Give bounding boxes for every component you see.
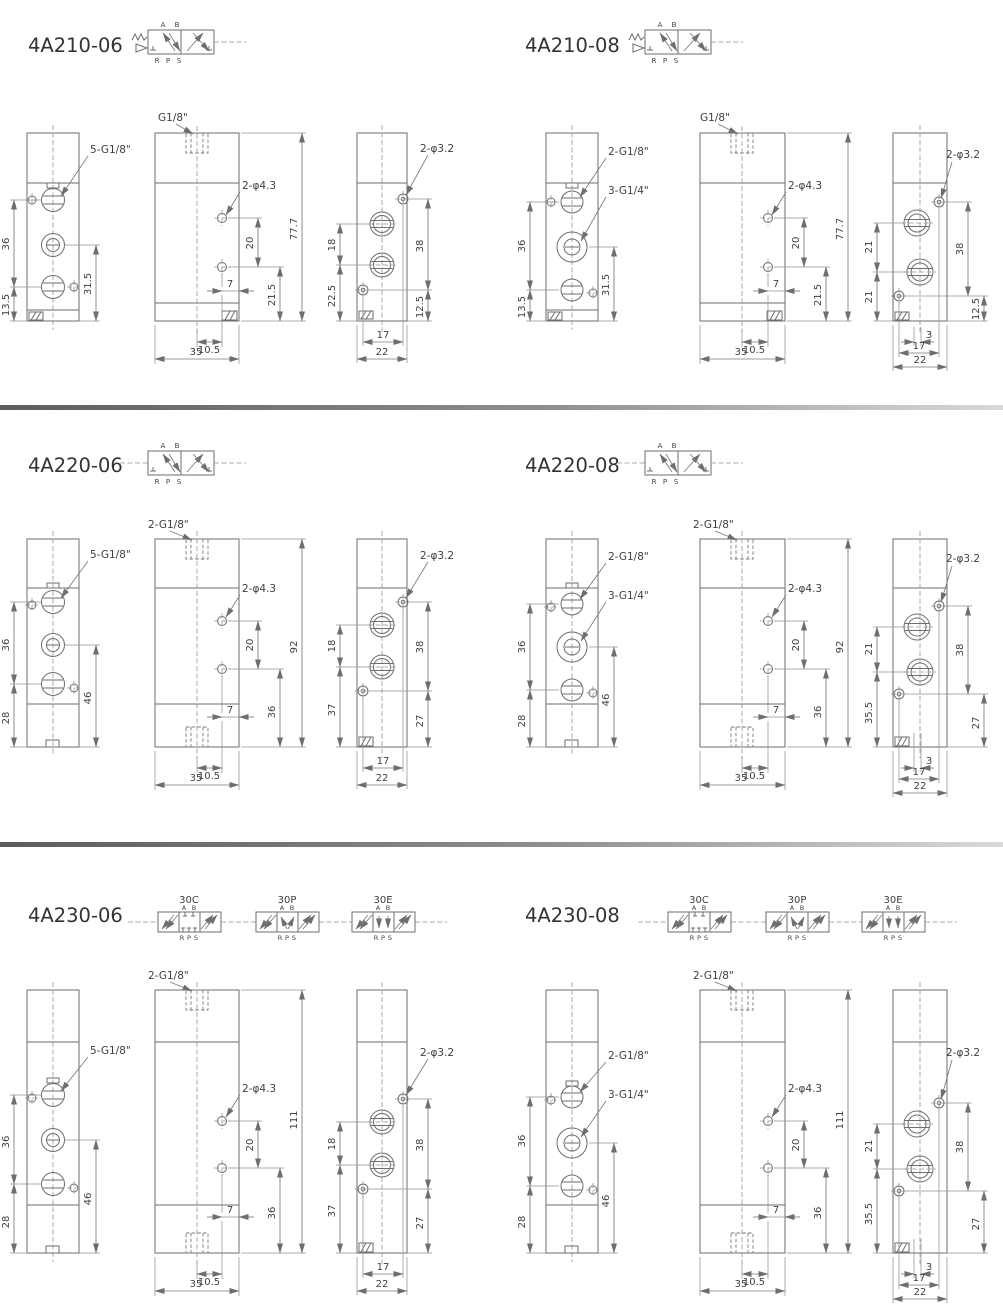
dim-label: 77.7 bbox=[835, 218, 846, 240]
dim-label: 17 bbox=[377, 756, 390, 767]
panel-title: 4A210-08 bbox=[525, 34, 620, 57]
dim-label: 22 bbox=[914, 781, 927, 792]
dim-label: 20 bbox=[245, 639, 256, 652]
port-letter: B bbox=[290, 904, 294, 912]
dim-label: 38 bbox=[955, 1141, 966, 1154]
dim-label: 36 bbox=[1, 639, 12, 652]
port-letter: B bbox=[672, 21, 677, 29]
dim-label: 36 bbox=[813, 706, 824, 719]
port-letter: P bbox=[795, 934, 799, 942]
hole-label: 2-φ4.3 bbox=[242, 583, 276, 595]
dim-label: 36 bbox=[267, 1207, 278, 1220]
port-letter: B bbox=[702, 904, 706, 912]
thread-label: 2-G1/8" bbox=[693, 970, 734, 982]
port-thread-label: 3-G1/4" bbox=[608, 590, 649, 602]
dim-label: 27 bbox=[971, 717, 982, 730]
dim-label: 36 bbox=[1, 238, 12, 251]
hole-label: 2-φ4.3 bbox=[788, 180, 822, 192]
dim-label: 17 bbox=[913, 1273, 926, 1284]
end-view: 2-φ3.2 18 37 38 27 17 22 bbox=[327, 531, 454, 789]
side-view: 2-G1/8" 2-φ4.3 20 36 111 7 10.5 35 bbox=[148, 970, 306, 1296]
port-letter: R bbox=[652, 57, 657, 65]
panel-title: 4A220-06 bbox=[28, 454, 123, 477]
dim-label: 28 bbox=[517, 715, 528, 728]
dim-label: 31.5 bbox=[601, 274, 612, 296]
hole-label: 2-φ3.2 bbox=[946, 1047, 980, 1059]
valve-dimension-sheet: 4A210-06 A B R P S 5-G1/8" 36 13.5 31.5 … bbox=[0, 0, 1003, 1314]
panel-4a230-06: 4A230-06 30C A B R P S 30P A B R P S 30E bbox=[1, 895, 454, 1296]
drawing-canvas: 4A210-06 A B R P S 5-G1/8" 36 13.5 31.5 … bbox=[0, 0, 1003, 1314]
panel-title: 4A230-08 bbox=[525, 904, 620, 927]
dim-label: 21 bbox=[864, 291, 875, 304]
row-separator bbox=[0, 842, 1003, 847]
dim-label: 17 bbox=[913, 767, 926, 778]
dim-label: 3 bbox=[926, 756, 932, 767]
dim-label: 7 bbox=[773, 279, 779, 290]
port-letter: P bbox=[663, 57, 667, 65]
dim-label: 77.7 bbox=[289, 218, 300, 240]
dim-label: 111 bbox=[835, 1110, 846, 1129]
dim-label: 36 bbox=[517, 240, 528, 253]
panel-title: 4A210-06 bbox=[28, 34, 123, 57]
symbol-30c: 30C A B R P S bbox=[668, 895, 731, 942]
symbol-30e: 30E A B R P S bbox=[862, 895, 925, 942]
port-letter: P bbox=[166, 478, 170, 486]
dim-label: 20 bbox=[245, 1139, 256, 1152]
port-letter: S bbox=[388, 934, 392, 942]
dim-label: 7 bbox=[227, 705, 233, 716]
port-letter: A bbox=[280, 904, 285, 912]
front-view: 5-G1/8" 36 28 46 bbox=[1, 531, 131, 756]
port-letter: A bbox=[161, 21, 166, 29]
dim-label: 46 bbox=[601, 694, 612, 707]
hole-label: 2-φ3.2 bbox=[420, 143, 454, 155]
panel-4a230-08: 4A230-08 30C A B R P S 30P A B R P S 30E… bbox=[517, 895, 988, 1303]
thread-label: G1/8" bbox=[700, 112, 730, 124]
valve-symbol-5-2: A B R P S bbox=[132, 21, 246, 65]
dim-label: 7 bbox=[773, 1205, 779, 1216]
port-letter: R bbox=[155, 57, 160, 65]
hole-label: 2-φ3.2 bbox=[946, 149, 980, 161]
dim-label: 38 bbox=[415, 240, 426, 253]
dim-label: 38 bbox=[955, 644, 966, 657]
port-letter: A bbox=[182, 904, 187, 912]
hole-label: 2-φ4.3 bbox=[242, 1083, 276, 1095]
dim-label: 20 bbox=[791, 1139, 802, 1152]
side-view: G1/8" 2-φ4.3 20 21.5 77.7 7 10.5 35 bbox=[700, 112, 852, 364]
port-thread-label: 2-G1/8" bbox=[608, 1050, 649, 1062]
port-letter: S bbox=[177, 57, 182, 65]
dim-label: 27 bbox=[415, 715, 426, 728]
port-letter: A bbox=[161, 442, 166, 450]
port-letter: P bbox=[697, 934, 701, 942]
row-separator bbox=[0, 405, 1003, 410]
dim-label: 38 bbox=[955, 243, 966, 256]
dim-label: 36 bbox=[517, 1135, 528, 1148]
dim-label: 92 bbox=[289, 641, 300, 654]
port-thread-label: 5-G1/8" bbox=[90, 549, 131, 561]
port-letter: R bbox=[155, 478, 160, 486]
dim-label: 20 bbox=[791, 237, 802, 250]
dim-label: 38 bbox=[415, 1139, 426, 1152]
dim-label: 7 bbox=[227, 279, 233, 290]
dim-label: 17 bbox=[913, 341, 926, 352]
side-view: 2-G1/8" 2-φ4.3 20 36 111 7 10.5 35 bbox=[693, 970, 852, 1296]
symbol-30p: 30P A B R P S bbox=[256, 895, 319, 942]
hole-label: 2-φ4.3 bbox=[788, 1083, 822, 1095]
dim-label: 3 bbox=[926, 1262, 932, 1273]
port-letter: B bbox=[175, 21, 180, 29]
front-view: 5-G1/8" 36 13.5 31.5 bbox=[1, 125, 131, 330]
dim-label: 18 bbox=[327, 1138, 338, 1151]
front-view: 2-G1/8" 3-G1/4" 36 28 46 bbox=[517, 982, 649, 1262]
port-letter: B bbox=[672, 442, 677, 450]
dim-label: 21 bbox=[864, 1140, 875, 1153]
port-letter: R bbox=[884, 934, 889, 942]
end-view: 2-φ3.2 21 35.5 38 27 3 17 22 bbox=[864, 982, 988, 1303]
end-view: 2-φ3.2 21 21 38 12.5 3 17 22 bbox=[864, 125, 988, 371]
dim-label: 13.5 bbox=[1, 294, 12, 316]
port-thread-label: 5-G1/8" bbox=[90, 144, 131, 156]
port-letter: A bbox=[886, 904, 891, 912]
hole-label: 2-φ3.2 bbox=[420, 550, 454, 562]
side-view: 2-G1/8" 2-φ4.3 20 36 92 7 10.5 35 bbox=[148, 519, 306, 790]
dim-label: 27 bbox=[415, 1217, 426, 1230]
port-letter: B bbox=[175, 442, 180, 450]
dim-label: 46 bbox=[601, 1195, 612, 1208]
dim-label: 21 bbox=[864, 643, 875, 656]
dim-label: 36 bbox=[517, 641, 528, 654]
dim-label: 17 bbox=[377, 330, 390, 341]
valve-symbol-5-3-set: 30C A B R P S 30P A B R P S 30E A B R P bbox=[638, 895, 957, 942]
port-letter: S bbox=[704, 934, 708, 942]
port-letter: S bbox=[292, 934, 296, 942]
thread-label: 2-G1/8" bbox=[693, 519, 734, 531]
port-letter: P bbox=[663, 478, 667, 486]
port-letter: R bbox=[180, 934, 185, 942]
dim-label: 35 bbox=[735, 1279, 748, 1290]
dim-label: 35.5 bbox=[864, 1203, 875, 1225]
dim-label: 27 bbox=[971, 1218, 982, 1231]
dim-label: 28 bbox=[1, 1216, 12, 1229]
dim-label: 22 bbox=[376, 1279, 389, 1290]
port-thread-label: 3-G1/4" bbox=[608, 1089, 649, 1101]
symbol-30e: 30E A B R P S bbox=[352, 895, 415, 942]
valve-symbol-5-2: A B R P S bbox=[629, 21, 743, 65]
front-view: 2-G1/8" 3-G1/4" 36 13.5 31.5 bbox=[517, 125, 649, 330]
symbol-30p: 30P A B R P S bbox=[766, 895, 829, 942]
hole-label: 2-φ4.3 bbox=[788, 583, 822, 595]
port-letter: S bbox=[802, 934, 806, 942]
front-view: 2-G1/8" 3-G1/4" 36 28 46 bbox=[517, 531, 649, 756]
panel-4a210-08: 4A210-08 A B R P S 2-G1/8" 3-G1/4" 36 13… bbox=[517, 21, 988, 371]
dim-label: 21.5 bbox=[267, 284, 278, 306]
dim-label: 22 bbox=[914, 355, 927, 366]
dim-label: 28 bbox=[1, 712, 12, 725]
dim-label: 31.5 bbox=[83, 273, 94, 295]
thread-label: 2-G1/8" bbox=[148, 519, 189, 531]
dim-label: 36 bbox=[1, 1136, 12, 1149]
dim-label: 35 bbox=[190, 1279, 203, 1290]
dim-label: 22 bbox=[376, 773, 389, 784]
dim-label: 35 bbox=[735, 347, 748, 358]
port-letter: P bbox=[187, 934, 191, 942]
port-letter: A bbox=[692, 904, 697, 912]
dim-label: 92 bbox=[835, 641, 846, 654]
port-letter: A bbox=[376, 904, 381, 912]
panel-4a210-06: 4A210-06 A B R P S 5-G1/8" 36 13.5 31.5 … bbox=[1, 21, 454, 364]
port-letter: R bbox=[652, 478, 657, 486]
dim-label: 36 bbox=[813, 1207, 824, 1220]
dim-label: 20 bbox=[791, 639, 802, 652]
port-letter: A bbox=[658, 442, 663, 450]
port-letter: A bbox=[658, 21, 663, 29]
dim-label: 28 bbox=[517, 1216, 528, 1229]
side-view: 2-G1/8" 2-φ4.3 20 36 92 7 10.5 35 bbox=[693, 519, 852, 790]
dim-label: 18 bbox=[327, 239, 338, 252]
port-letter: R bbox=[788, 934, 793, 942]
dim-label: 21.5 bbox=[813, 284, 824, 306]
port-letter: R bbox=[690, 934, 695, 942]
dim-label: 36 bbox=[267, 706, 278, 719]
port-letter: R bbox=[374, 934, 379, 942]
port-letter: S bbox=[177, 478, 182, 486]
dim-label: 35 bbox=[735, 773, 748, 784]
dim-label: 22 bbox=[914, 1287, 927, 1298]
end-view: 2-φ3.2 18 37 38 27 17 22 bbox=[327, 982, 454, 1295]
port-thread-label: 2-G1/8" bbox=[608, 146, 649, 158]
dim-label: 18 bbox=[327, 640, 338, 653]
dim-label: 7 bbox=[227, 1205, 233, 1216]
hole-label: 2-φ3.2 bbox=[420, 1047, 454, 1059]
panel-4a220-08: 4A220-08 A B R P S 2-G1/8" 3-G1/4" 36 28… bbox=[517, 442, 988, 797]
dim-label: 35 bbox=[190, 347, 203, 358]
port-letter: S bbox=[674, 57, 679, 65]
port-letter: P bbox=[381, 934, 385, 942]
port-letter: B bbox=[800, 904, 804, 912]
dim-label: 38 bbox=[415, 641, 426, 654]
port-letter: P bbox=[285, 934, 289, 942]
dim-label: 3 bbox=[926, 330, 932, 341]
port-letter: R bbox=[278, 934, 283, 942]
valve-symbol-5-2-double: A B R P S bbox=[120, 442, 246, 486]
port-letter: S bbox=[194, 934, 198, 942]
end-view: 2-φ3.2 18 22.5 38 12.5 17 22 bbox=[327, 125, 454, 363]
dim-label: 17 bbox=[377, 1262, 390, 1273]
thread-label: G1/8" bbox=[158, 112, 188, 124]
valve-symbol-5-3-set: 30C A B R P S 30P A B R P S 30E A B R bbox=[128, 895, 447, 942]
symbol-30c: 30C A B R P S bbox=[158, 895, 221, 942]
dim-label: 35 bbox=[190, 773, 203, 784]
panel-4a220-06: 4A220-06 A B R P S 5-G1/8" 36 28 46 2-G1… bbox=[1, 442, 454, 790]
dim-label: 37 bbox=[327, 1205, 338, 1218]
thread-label: 2-G1/8" bbox=[148, 970, 189, 982]
dim-label: 13.5 bbox=[517, 296, 528, 318]
port-letter: B bbox=[386, 904, 390, 912]
dim-label: 12.5 bbox=[415, 296, 426, 318]
dim-label: 35.5 bbox=[864, 702, 875, 724]
end-view: 2-φ3.2 21 35.5 38 27 3 17 22 bbox=[864, 531, 988, 797]
dim-label: 22 bbox=[376, 347, 389, 358]
panel-title: 4A220-08 bbox=[525, 454, 620, 477]
dim-label: 7 bbox=[773, 705, 779, 716]
port-letter: P bbox=[891, 934, 895, 942]
port-thread-label: 3-G1/4" bbox=[608, 185, 649, 197]
dim-label: 22.5 bbox=[327, 285, 338, 307]
port-thread-label: 2-G1/8" bbox=[608, 551, 649, 563]
dim-label: 46 bbox=[83, 1193, 94, 1206]
dim-label: 12.5 bbox=[971, 298, 982, 320]
hole-label: 2-φ3.2 bbox=[946, 553, 980, 565]
port-letter: S bbox=[898, 934, 902, 942]
dim-label: 20 bbox=[245, 237, 256, 250]
dim-label: 46 bbox=[83, 692, 94, 705]
front-view: 5-G1/8" 36 28 46 bbox=[1, 982, 131, 1262]
dim-label: 21 bbox=[864, 241, 875, 254]
dim-label: 111 bbox=[289, 1110, 300, 1129]
port-letter: B bbox=[192, 904, 196, 912]
port-letter: B bbox=[896, 904, 900, 912]
hole-label: 2-φ4.3 bbox=[242, 180, 276, 192]
panel-title: 4A230-06 bbox=[28, 904, 123, 927]
port-letter: S bbox=[674, 478, 679, 486]
dim-label: 37 bbox=[327, 704, 338, 717]
port-letter: P bbox=[166, 57, 170, 65]
valve-symbol-5-2-double: A B R P S bbox=[617, 442, 743, 486]
side-view: G1/8" 2-φ4.3 20 21.5 77.7 7 10.5 35 bbox=[155, 112, 306, 364]
port-letter: A bbox=[790, 904, 795, 912]
port-thread-label: 5-G1/8" bbox=[90, 1045, 131, 1057]
